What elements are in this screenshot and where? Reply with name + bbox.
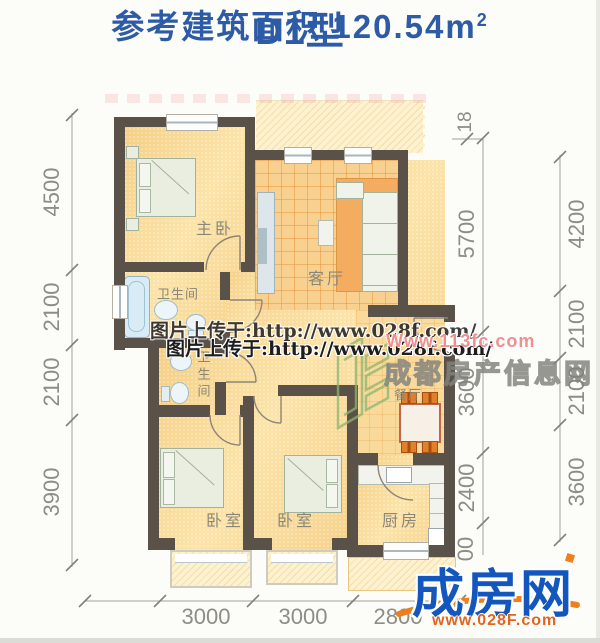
dim-left-2100a: 2100	[39, 283, 65, 332]
brand-logo-url: www.028F.com	[432, 612, 557, 630]
dim-left-2100b: 2100	[39, 358, 65, 407]
site-watermark-gray: 成都房产信息网	[384, 352, 594, 391]
label-master-bedroom: 主卧	[196, 215, 234, 239]
label-bathroom-1: 卫生间	[157, 284, 199, 303]
dim-outer-4200: 4200	[564, 200, 590, 249]
label-living-room: 客厅	[308, 265, 346, 289]
dim-bottom-3000b: 3000	[279, 604, 328, 630]
floorplan-scan: D1型 参考建筑面积 120.54m2	[0, 0, 600, 643]
dim-bottom-3000a: 3000	[182, 604, 231, 630]
dim-inner-5700: 5700	[454, 210, 480, 259]
dim-left-3900: 3900	[39, 468, 65, 517]
dim-inner-18: 18	[455, 111, 477, 132]
dim-left-4500: 4500	[39, 168, 65, 217]
site-watermark-pink: Www.113fc.com	[386, 331, 535, 352]
dim-outer-3600: 3600	[564, 458, 590, 507]
dim-inner-2400: 2400	[454, 464, 480, 513]
scan-edge-right	[596, 0, 600, 643]
scan-edge-bottom	[0, 638, 600, 643]
label-bedroom-2: 卧室	[277, 507, 315, 531]
dim-outer-2100a: 2100	[564, 300, 590, 349]
label-bedroom-1: 卧室	[206, 507, 244, 531]
faint-watermark-row	[105, 94, 435, 103]
label-kitchen: 厨房	[382, 507, 420, 531]
